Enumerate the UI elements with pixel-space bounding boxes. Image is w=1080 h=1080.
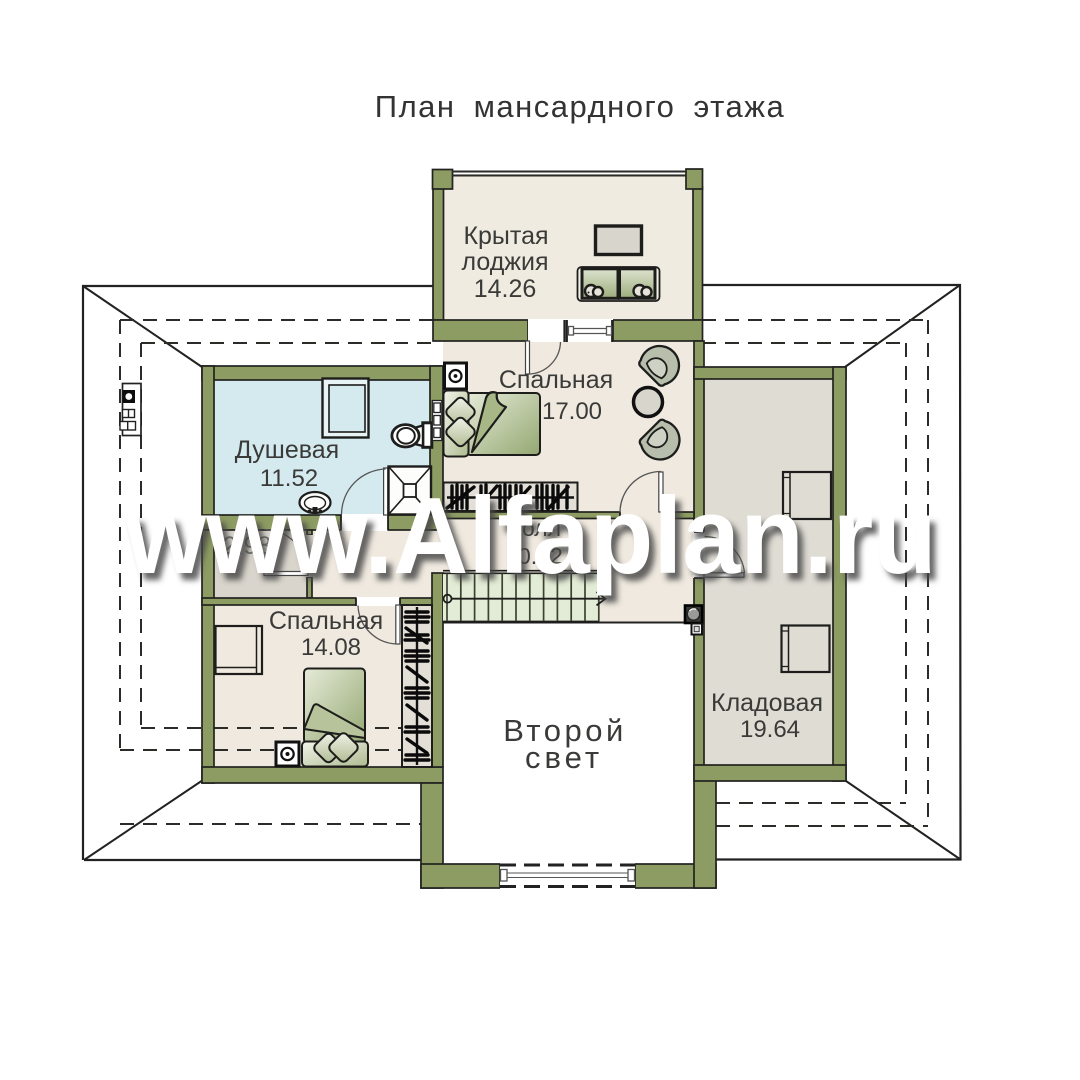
svg-text:свет: свет <box>525 740 603 775</box>
svg-text:Спальная: Спальная <box>269 607 383 635</box>
svg-text:14.26: 14.26 <box>474 275 537 303</box>
svg-text:Душевая: Душевая <box>235 436 339 464</box>
svg-text:19.64: 19.64 <box>740 716 800 743</box>
svg-text:Кладовая: Кладовая <box>711 689 823 717</box>
svg-text:17.00: 17.00 <box>542 398 602 425</box>
svg-text:14.08: 14.08 <box>301 634 361 661</box>
svg-text:лоджия: лоджия <box>461 248 548 276</box>
svg-text:Спальная: Спальная <box>499 366 613 394</box>
svg-text:Крытая: Крытая <box>463 222 548 250</box>
